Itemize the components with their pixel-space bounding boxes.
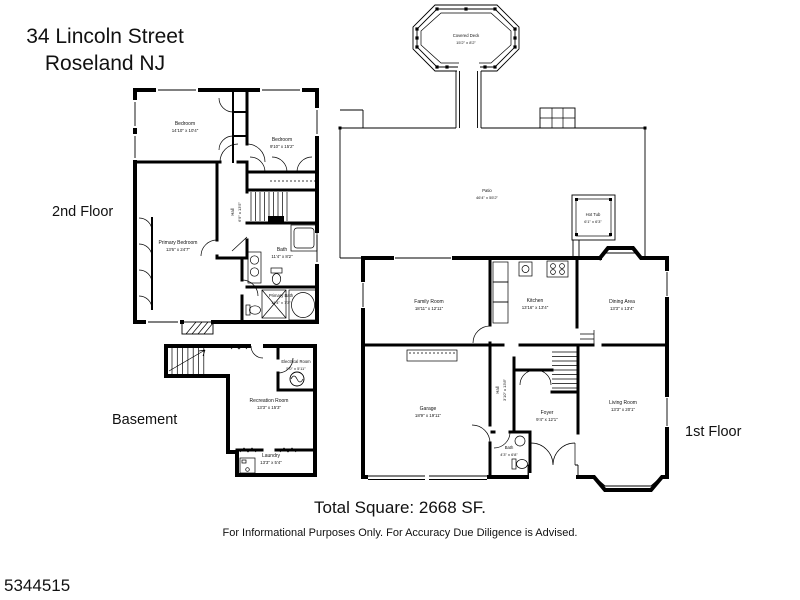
stoop-hatch (182, 322, 213, 334)
sink-icon (515, 436, 525, 446)
deck-mid-rail (417, 9, 515, 67)
deck-walkway-rails (456, 71, 481, 128)
garage-dims: 18'9" x 19'11" (415, 413, 442, 418)
toilet-icon (246, 305, 261, 315)
dining-area-dims: 13'3" x 13'4" (610, 306, 635, 311)
family-room-dims: 18'11" x 12'11" (415, 306, 444, 311)
primary-bedroom-name: Primary Bedroom (159, 240, 198, 246)
hot-tub-dims: 6'1" x 6'3" (584, 219, 602, 224)
garage-storage (407, 350, 457, 361)
door-arcs (139, 98, 312, 309)
interior-walls (135, 90, 317, 322)
bath-name: Bath (505, 445, 514, 450)
patio-corner-post (339, 127, 342, 130)
total-square-footage: Total Square: 2668 SF. (0, 498, 800, 518)
hall-name: Hall (230, 208, 235, 215)
hall-name: Hall (495, 386, 500, 393)
second-floor-plan: Bedroom 14'10" x 10'4" Bedroom 9'10" x 1… (132, 87, 320, 334)
first-floor-plan: Family Room 18'11" x 12'11" Kitchen 13'1… (360, 248, 670, 490)
bath-dims: 4'3" x 6'8" (500, 452, 518, 457)
recreation-room-dims: 13'3" x 15'3" (257, 405, 282, 410)
main-stairs (552, 352, 578, 388)
front-entry-doors (528, 443, 578, 481)
electrical-room-name: Electrical Room (281, 359, 311, 364)
primary-bath-name: Primary Bath (269, 293, 294, 298)
closet-walls (152, 90, 247, 309)
deck-outer-rail (413, 5, 519, 71)
garage-name: Garage (420, 406, 437, 412)
deck-dims: 15'2" x 8'2" (456, 40, 476, 45)
deck-name: Covered Deck (453, 33, 480, 38)
kitchen-name: Kitchen (527, 298, 544, 304)
kitchen-dims: 13'16" x 13'4" (522, 305, 549, 310)
living-room-name: Living Room (609, 400, 637, 406)
patio-corner-post (644, 127, 647, 130)
floor-plan-page: 34 Lincoln Street Roseland NJ 2nd Floor … (0, 0, 800, 600)
stove-icon (547, 261, 568, 277)
electrical-room-dims: 5'0" x 5'11" (286, 366, 306, 371)
recreation-room-name: Recreation Room (250, 398, 289, 404)
covered-deck: Covered Deck 15'2" x 8'2" (413, 5, 519, 128)
bedroom-left-name: Bedroom (175, 121, 195, 127)
listing-id-watermark: 5344515 (4, 576, 70, 596)
bath-name: Bath (277, 247, 288, 253)
hall-dims: 6'9" x 13'5" (237, 202, 242, 222)
bath-dims: 11'4" x 8'2" (271, 254, 293, 259)
basement-stairs (169, 348, 205, 374)
patio-name: Patio (482, 188, 492, 193)
primary-bedroom-dims: 13'6" x 24'7" (166, 247, 191, 252)
sink-icon (250, 256, 258, 264)
deck-floor-edge (421, 13, 511, 63)
laundry-name: Laundry (262, 453, 281, 459)
foyer-dims: 9'4" x 12'1" (536, 417, 558, 422)
outdoor-grill-unit (540, 108, 575, 128)
electrical-panel-icon (290, 372, 304, 386)
washer-icon (240, 458, 255, 473)
deck-posts (415, 7, 516, 68)
bedroom-right-dims: 9'10" x 15'2" (270, 144, 295, 149)
interior-walls (363, 258, 667, 477)
basement-stair-stub (580, 330, 594, 345)
sink-icon (250, 268, 258, 276)
basement-plan: Recreation Room 13'3" x 15'3" Electrical… (166, 343, 315, 475)
bedroom-right-name: Bedroom (272, 137, 292, 143)
door-gap (251, 343, 263, 349)
hall-dims: 3'10" x 13'8" (502, 378, 507, 401)
patio: Patio 46'4" x 55'2" Hot Tub 6'1" x 6'3" (339, 108, 647, 258)
bathtub-icon (289, 290, 317, 320)
primary-bath-dims: 11'4" x 7'3" (271, 300, 291, 305)
kitchen-fixtures (493, 261, 568, 323)
sink-icon (519, 262, 532, 276)
hot-tub-name: Hot Tub (586, 212, 601, 217)
chimney (268, 216, 284, 223)
bathtub-icon (291, 225, 317, 251)
living-room-dims: 13'3" x 20'1" (611, 407, 636, 412)
dining-area-name: Dining Area (609, 299, 635, 305)
laundry-dims: 13'3" x 5'4" (260, 460, 282, 465)
family-room-name: Family Room (414, 299, 443, 305)
bedroom-left-dims: 14'10" x 10'4" (172, 128, 199, 133)
disclaimer-text: For Informational Purposes Only. For Acc… (0, 527, 800, 539)
toilet-icon (512, 459, 528, 469)
foyer-name: Foyer (541, 410, 554, 416)
toilet-icon (271, 268, 282, 285)
patio-dims: 46'4" x 55'2" (476, 195, 499, 200)
windows (132, 87, 320, 325)
